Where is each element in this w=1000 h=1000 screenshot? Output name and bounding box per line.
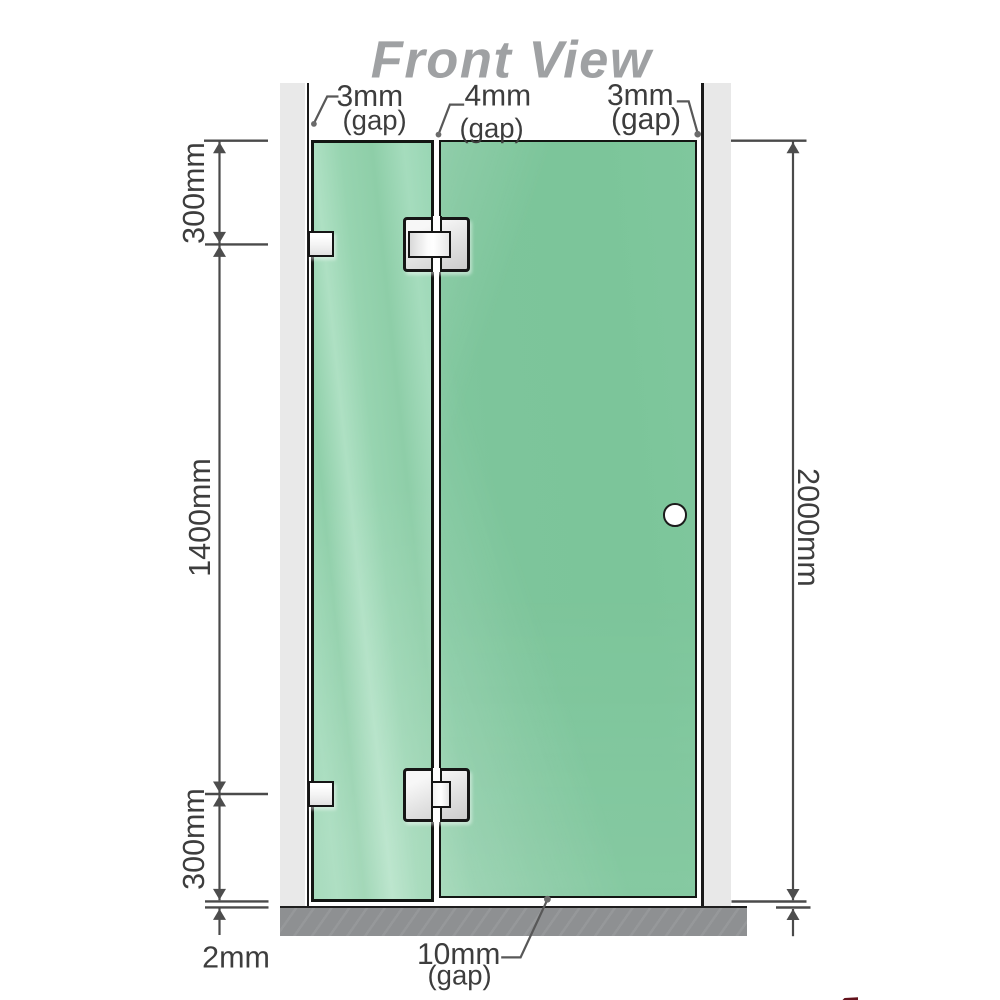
svg-text:1400mm: 1400mm: [183, 458, 217, 577]
svg-text:300mm: 300mm: [177, 788, 211, 890]
svg-text:300mm: 300mm: [177, 142, 211, 244]
svg-text:(gap): (gap): [460, 113, 524, 144]
svg-text:2000mm: 2000mm: [791, 468, 825, 587]
svg-text:2mm: 2mm: [202, 941, 270, 975]
svg-text:(gap): (gap): [428, 960, 492, 991]
svg-text:4mm: 4mm: [465, 80, 532, 113]
svg-text:(gap): (gap): [343, 105, 407, 136]
svg-text:(gap): (gap): [611, 103, 681, 136]
